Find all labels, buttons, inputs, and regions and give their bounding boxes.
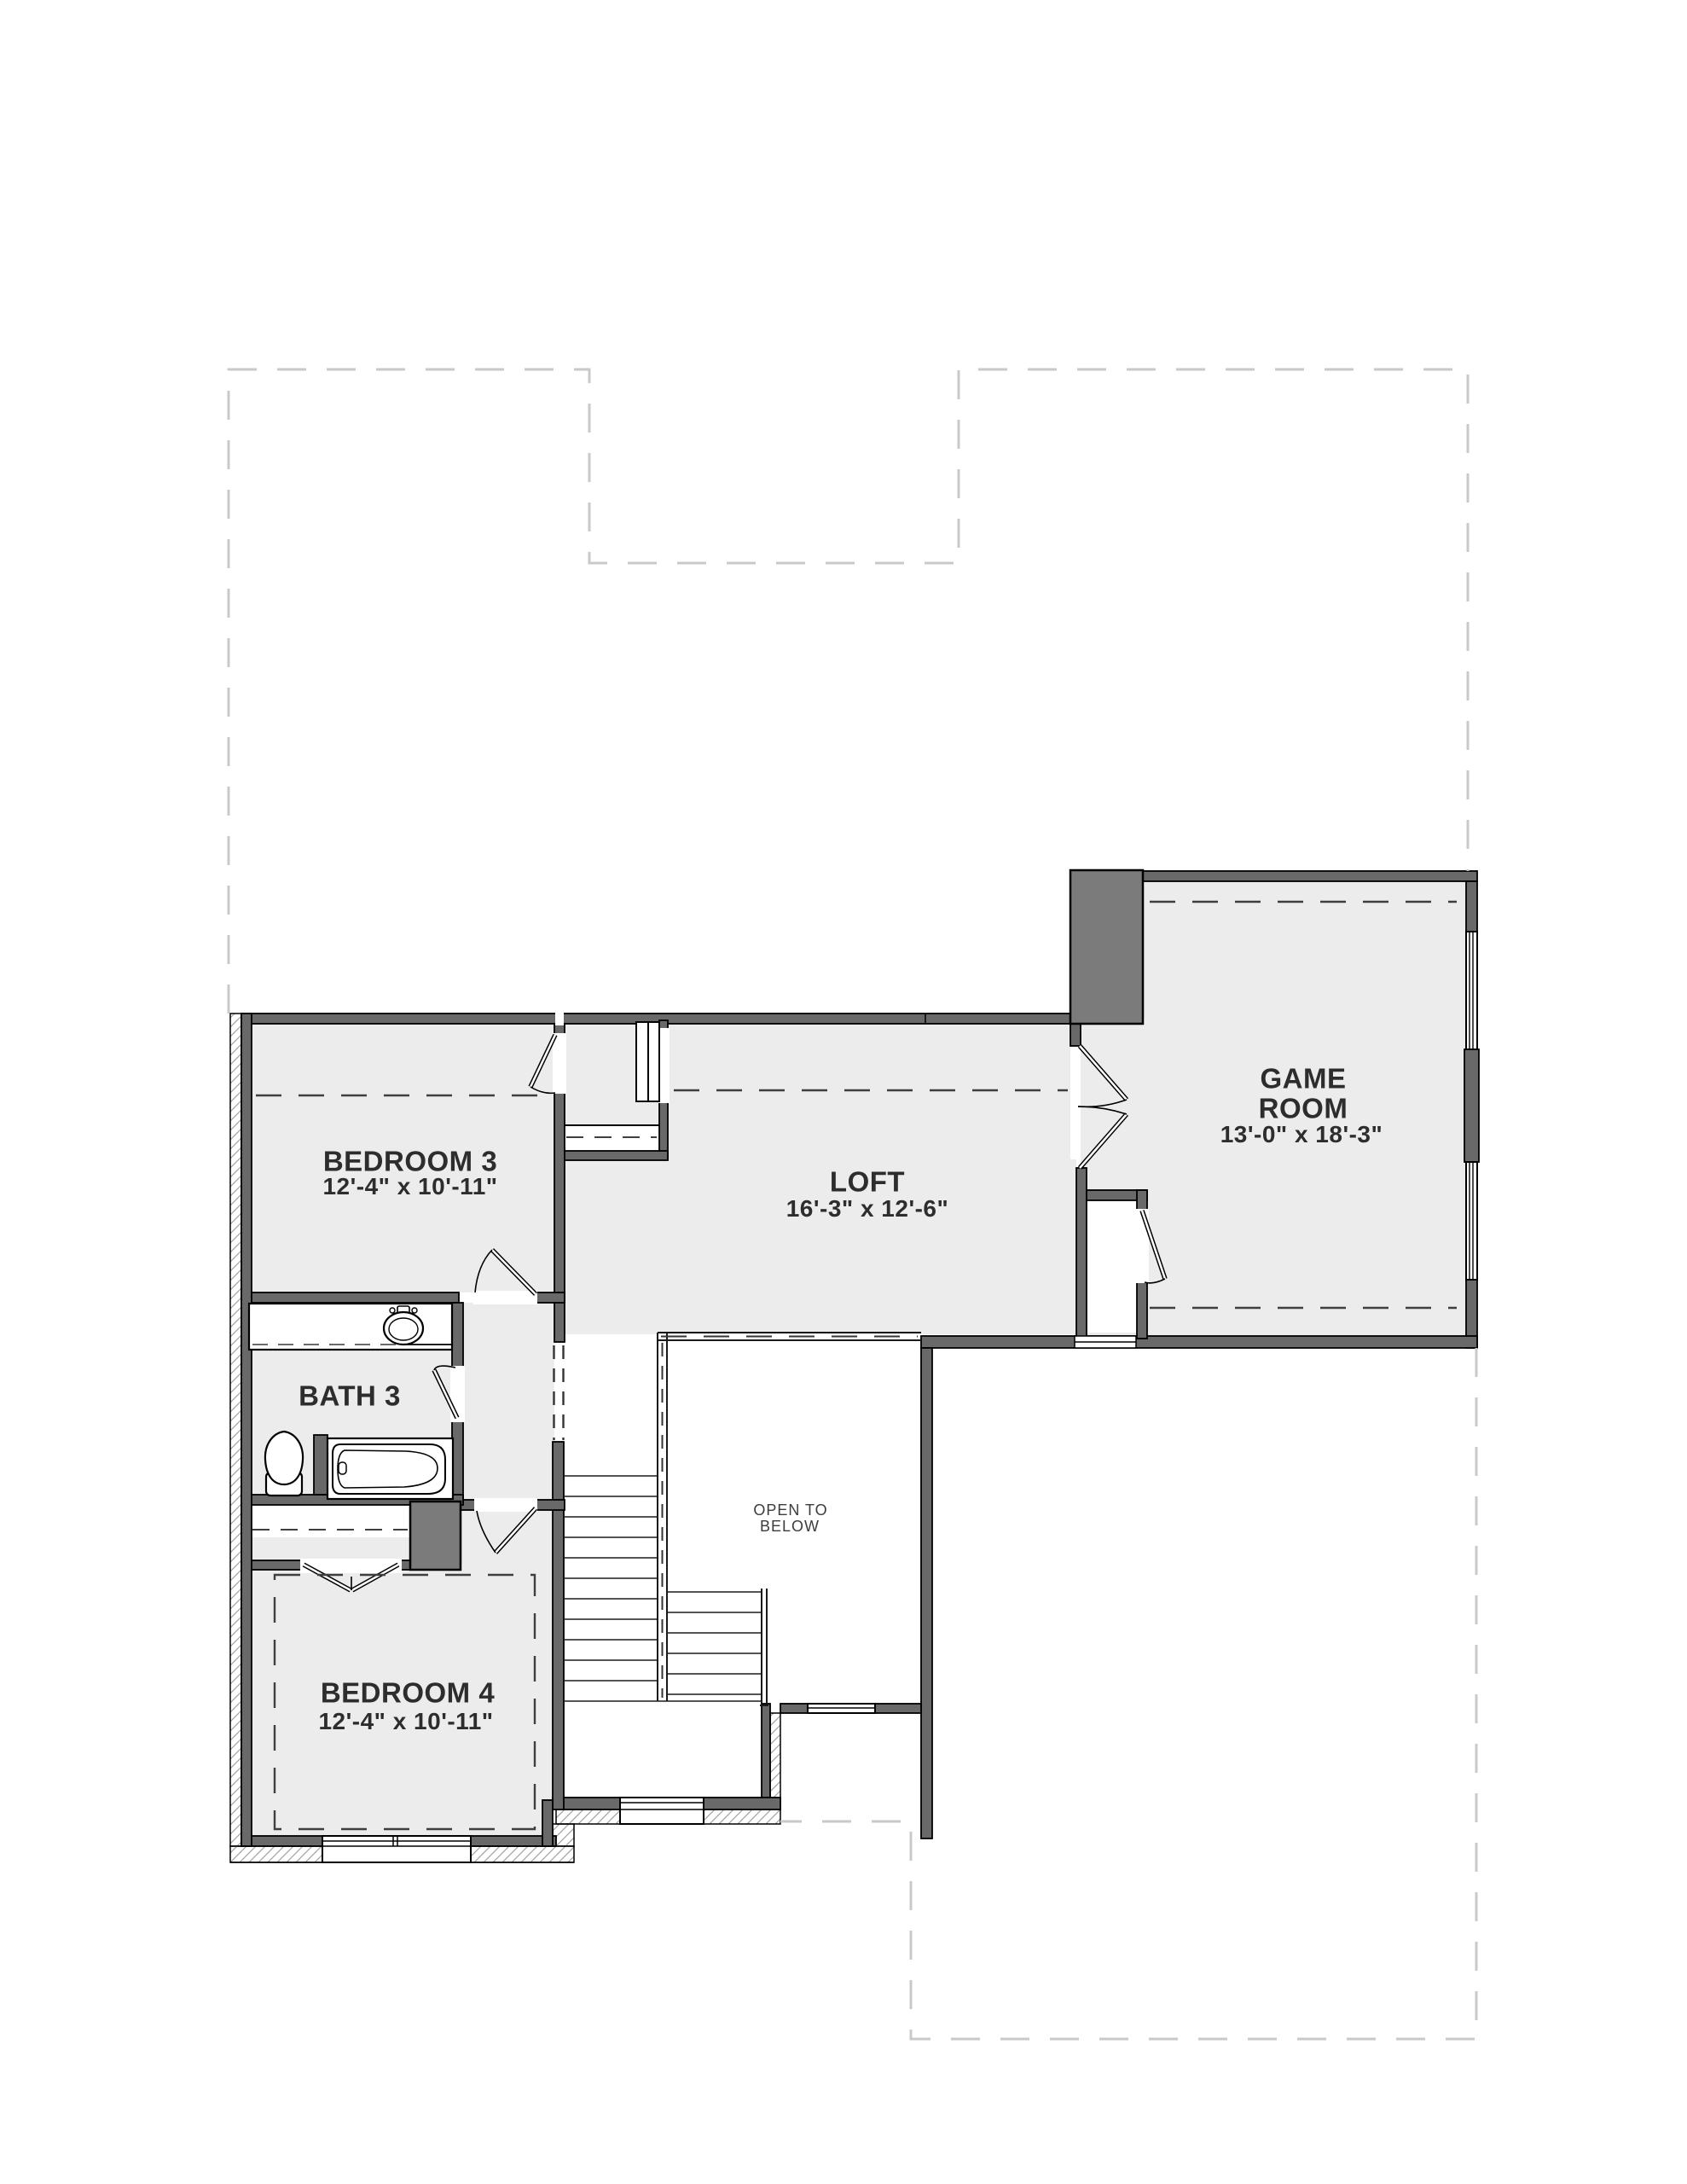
window-landing-south bbox=[620, 1798, 704, 1824]
window-bedroom4 bbox=[322, 1836, 471, 1862]
window-gameroom-2 bbox=[1466, 1162, 1477, 1280]
window-loft-bottom bbox=[1075, 1336, 1136, 1348]
label-open-to-below-line2: BELOW bbox=[760, 1519, 820, 1534]
label-open-to-below-line1: OPEN TO bbox=[753, 1502, 827, 1518]
closet-double-doors bbox=[636, 1022, 659, 1101]
toilet bbox=[265, 1432, 303, 1496]
label-bedroom3-name: BEDROOM 3 bbox=[323, 1147, 497, 1176]
label-loft-name: LOFT bbox=[830, 1168, 905, 1196]
staircase bbox=[554, 1333, 769, 1705]
label-bedroom3-dims: 12'-4" x 10'-11" bbox=[322, 1175, 497, 1199]
label-gameroom-dims: 13'-0" x 18'-3" bbox=[1220, 1123, 1383, 1147]
window-landing-north bbox=[808, 1704, 875, 1713]
stair-treads-lower-flight bbox=[668, 1592, 762, 1694]
floor-plan-drawing bbox=[0, 0, 1687, 2184]
window-gameroom-1 bbox=[1466, 932, 1477, 1049]
stair-stringer bbox=[658, 1333, 667, 1701]
label-bath3-name: BATH 3 bbox=[299, 1382, 401, 1410]
floor-plan-canvas: BEDROOM 3 12'-4" x 10'-11" LOFT 16'-3" x… bbox=[0, 0, 1687, 2184]
stair-top-cased-opening bbox=[554, 1345, 564, 1440]
label-gameroom-name-line1: GAME bbox=[1261, 1065, 1347, 1093]
bathtub bbox=[328, 1438, 453, 1499]
sink bbox=[384, 1306, 423, 1345]
stair-handrail bbox=[760, 1589, 768, 1705]
label-gameroom-name-line2: ROOM bbox=[1259, 1095, 1348, 1123]
label-loft-dims: 16'-3" x 12'-6" bbox=[786, 1197, 949, 1221]
label-bedroom4-name: BEDROOM 4 bbox=[321, 1679, 495, 1707]
label-bedroom4-dims: 12'-4" x 10'-11" bbox=[318, 1710, 493, 1734]
